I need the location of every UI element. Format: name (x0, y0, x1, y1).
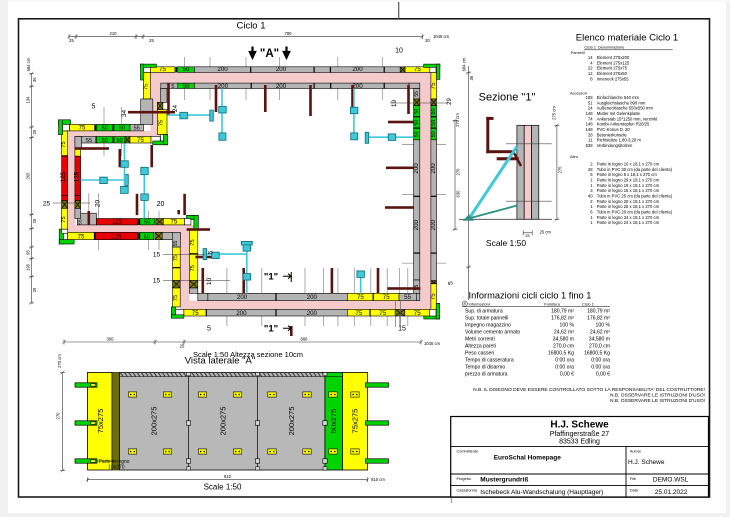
svg-text:Committente: Committente (457, 449, 479, 453)
svg-text:Informazioni: Informazioni (469, 301, 490, 306)
svg-text:Impegno magazzino: Impegno magazzino (465, 323, 511, 329)
svg-text:75: 75 (430, 82, 437, 89)
svg-text:55: 55 (173, 241, 179, 247)
svg-text:Parte in legno 19 x 18,1 x 270: Parte in legno 19 x 18,1 x 270 cm (597, 183, 660, 188)
svg-text:5: 5 (92, 104, 96, 111)
svg-text:270: 270 (456, 168, 461, 176)
svg-text:24: 24 (588, 106, 593, 111)
svg-text:Scale 1:50: Scale 1:50 (204, 483, 242, 492)
svg-text:125: 125 (61, 171, 67, 182)
svg-text:200: 200 (276, 66, 287, 73)
svg-text:50: 50 (119, 126, 125, 132)
svg-text:25: 25 (32, 218, 37, 223)
svg-text:Element 275x50: Element 275x50 (597, 71, 628, 76)
svg-text:25: 25 (32, 287, 37, 292)
svg-text:40: 40 (588, 194, 593, 199)
svg-text:275 cm: 275 cm (551, 106, 556, 120)
svg-text:Parte in legno 25 x 18,1 x 270: Parte in legno 25 x 18,1 x 270 cm (597, 204, 660, 209)
svg-text:Außenecklasche 550x550 mm: Außenecklasche 550x550 mm (597, 106, 654, 111)
svg-text:Element 275x75: Element 275x75 (597, 66, 628, 71)
svg-text:55: 55 (86, 138, 92, 144)
svg-text:10x270: 10x270 (108, 465, 125, 471)
svg-text:200: 200 (413, 219, 420, 230)
svg-text:Verbindungsbolzen: Verbindungsbolzen (597, 143, 633, 148)
svg-text:148: 148 (586, 127, 594, 132)
svg-text:Parte in legno 10 x 18,1 x 270: Parte in legno 10 x 18,1 x 270 cm (597, 162, 660, 167)
svg-text:200: 200 (413, 163, 420, 174)
svg-text:Fornitura: Fornitura (544, 301, 560, 306)
svg-text:EuroSchal Homepage: EuroSchal Homepage (494, 454, 562, 461)
svg-text:200: 200 (236, 310, 247, 317)
svg-text:Peso casseri: Peso casseri (465, 351, 494, 357)
svg-text:5: 5 (208, 250, 215, 254)
svg-text:Ciclo 1: Ciclo 1 (584, 46, 596, 50)
svg-text:15: 15 (153, 252, 161, 259)
svg-text:50: 50 (414, 131, 420, 137)
svg-text:125: 125 (111, 235, 122, 241)
svg-text:Tubo in PVC 25 cm (da parte de: Tubo in PVC 25 cm (da parte del cliente) (597, 194, 673, 199)
svg-text:200: 200 (430, 163, 437, 174)
svg-text:200: 200 (217, 66, 228, 73)
svg-text:H.J. Schewe: H.J. Schewe (550, 420, 609, 431)
svg-text:50: 50 (183, 83, 190, 90)
svg-text:50: 50 (431, 120, 437, 126)
svg-text:180,79 m²: 180,79 m² (551, 309, 574, 315)
svg-text:34: 34 (121, 110, 128, 118)
svg-text:75: 75 (61, 141, 67, 147)
svg-text:75: 75 (430, 293, 437, 300)
svg-text:75: 75 (159, 66, 166, 73)
svg-text:N.B. OSSERVARE LE ISTRUZIONI D: N.B. OSSERVARE LE ISTRUZIONI D'USO! (610, 398, 705, 404)
svg-text:16800,5 Kg: 16800,5 Kg (548, 351, 574, 357)
svg-text:Volume cemento armato: Volume cemento armato (465, 330, 520, 336)
svg-text:Cassaforma: Cassaforma (457, 488, 478, 492)
svg-text:270: 270 (56, 412, 61, 420)
svg-text:16800,5 Kg: 16800,5 Kg (584, 351, 610, 357)
svg-text:N.B. OSSERVARE LE ISTRUZIONI D: N.B. OSSERVARE LE ISTRUZIONI D'USO! (610, 393, 705, 399)
svg-text:0:00 ora: 0:00 ora (555, 365, 574, 371)
svg-text:50: 50 (102, 126, 108, 132)
svg-text:75: 75 (79, 126, 86, 132)
svg-text:Pfaffingerstraße 27: Pfaffingerstraße 27 (550, 431, 610, 438)
svg-text:83533 Edling: 83533 Edling (559, 439, 600, 446)
svg-text:10: 10 (206, 278, 213, 286)
svg-text:200: 200 (352, 66, 363, 73)
svg-text:25: 25 (149, 38, 154, 43)
svg-text:Denominazione: Denominazione (598, 46, 624, 50)
svg-text:75: 75 (190, 239, 196, 245)
svg-text:200: 200 (276, 83, 287, 90)
svg-text:50: 50 (144, 235, 150, 241)
svg-text:"1": "1" (264, 324, 278, 335)
svg-text:200: 200 (237, 294, 248, 301)
svg-text:PVC-Konus D. 20: PVC-Konus D. 20 (597, 127, 631, 132)
svg-text:N.B. IL DISEGNO DEVE ESSERE CO: N.B. IL DISEGNO DEVE ESSERE CONTROLLATO … (473, 387, 705, 393)
svg-text:275: 275 (557, 166, 562, 174)
svg-text:51: 51 (588, 100, 593, 105)
svg-text:666: 666 (301, 336, 309, 341)
svg-text:Mutter mit Gelenkplatte: Mutter mit Gelenkplatte (597, 111, 641, 116)
svg-text:Data: Data (630, 488, 639, 492)
svg-text:75: 75 (173, 295, 179, 301)
svg-text:270,0 cm: 270,0 cm (553, 344, 574, 350)
svg-text:Altezza pareti: Altezza pareti (465, 344, 496, 350)
svg-text:20: 20 (95, 200, 102, 208)
svg-text:265: 265 (26, 172, 31, 180)
svg-text:11: 11 (588, 138, 593, 143)
svg-text:50: 50 (414, 120, 420, 126)
svg-text:180,79 m²: 180,79 m² (587, 309, 610, 315)
svg-text:780: 780 (285, 31, 293, 36)
svg-text:75: 75 (137, 138, 144, 144)
svg-text:50: 50 (183, 66, 190, 73)
svg-text:50x275: 50x275 (329, 409, 338, 434)
svg-text:200: 200 (307, 294, 318, 301)
svg-text:Autore: Autore (630, 449, 641, 453)
svg-text:28: 28 (588, 167, 593, 172)
svg-text:270 cm: 270 cm (57, 354, 62, 368)
svg-text:75: 75 (414, 66, 421, 73)
svg-text:148: 148 (586, 122, 594, 127)
svg-text:75: 75 (355, 310, 362, 317)
svg-text:Accessori: Accessori (570, 91, 587, 96)
svg-text:55: 55 (134, 126, 140, 132)
svg-text:125: 125 (74, 171, 80, 182)
svg-text:24: 24 (172, 105, 179, 113)
svg-text:Tubo in PVC 20 cm (da parte de: Tubo in PVC 20 cm (da parte del cliente) (597, 210, 673, 215)
svg-text:50: 50 (116, 138, 122, 144)
svg-text:200: 200 (430, 219, 437, 230)
svg-text:15: 15 (398, 326, 406, 333)
svg-text:26: 26 (32, 129, 37, 134)
svg-text:200x275: 200x275 (219, 407, 228, 436)
svg-text:Pannelli: Pannelli (571, 50, 585, 55)
svg-text:125: 125 (112, 220, 123, 226)
svg-text:55: 55 (78, 219, 83, 225)
svg-text:50: 50 (414, 109, 420, 115)
svg-text:270 cm: 270 cm (455, 113, 460, 127)
svg-text:55: 55 (414, 91, 420, 97)
svg-text:Einfachlasche 540 mm: Einfachlasche 540 mm (597, 95, 640, 100)
svg-text:75: 75 (383, 294, 390, 301)
svg-text:75: 75 (379, 310, 386, 317)
svg-text:Ciclo 1: Ciclo 1 (236, 21, 265, 32)
svg-text:Informazioni cicli ciclo 1 fi: Informazioni cicli ciclo 1 fino 1 (469, 291, 592, 301)
svg-text:200x275: 200x275 (150, 407, 159, 436)
svg-text:810: 810 (224, 474, 232, 479)
svg-text:25: 25 (69, 38, 74, 43)
svg-text:"A": "A" (260, 48, 279, 60)
svg-text:Richtstütze 1,80-3,20 m: Richtstütze 1,80-3,20 m (597, 138, 642, 143)
svg-text:Element 275x125: Element 275x125 (597, 60, 630, 65)
svg-text:Element 275x200: Element 275x200 (597, 55, 630, 60)
svg-text:Mustergrundriß: Mustergrundriß (480, 477, 528, 484)
svg-text:Tubo in PVC 30 cm (da parte de: Tubo in PVC 30 cm (da parte del cliente) (597, 167, 673, 172)
svg-text:Parte in legno 24 x 18,1 x 270: Parte in legno 24 x 18,1 x 270 cm (597, 220, 660, 225)
svg-text:200: 200 (307, 310, 318, 317)
svg-text:100 %: 100 % (560, 323, 575, 329)
svg-text:75: 75 (414, 310, 421, 317)
svg-text:DEMO.WSL: DEMO.WSL (653, 477, 689, 484)
svg-text:75: 75 (357, 294, 364, 301)
svg-text:Sup. di armatura: Sup. di armatura (465, 309, 503, 315)
svg-text:22: 22 (588, 66, 593, 71)
svg-text:25 cm: 25 cm (540, 229, 552, 234)
svg-text:75: 75 (78, 235, 85, 241)
svg-text:684 cm: 684 cm (462, 57, 467, 71)
svg-text:176,82 m²: 176,82 m² (551, 316, 574, 322)
svg-text:1045 cm: 1045 cm (433, 34, 450, 39)
svg-text:75: 75 (61, 216, 67, 222)
svg-text:24,62 m³: 24,62 m³ (554, 330, 574, 336)
svg-text:12: 12 (588, 71, 593, 76)
svg-text:Ischebeck Alu-Wandschalung (Ha: Ischebeck Alu-Wandschalung (Hauptlager) (480, 489, 603, 496)
svg-text:Tempo di disarmo: Tempo di disarmo (465, 365, 505, 371)
svg-text:Metri correnti: Metri correnti (465, 337, 495, 343)
svg-text:Inneneck 275x55: Inneneck 275x55 (597, 76, 630, 81)
svg-text:300: 300 (107, 336, 115, 341)
svg-text:0:00 ora: 0:00 ora (591, 365, 610, 371)
svg-text:270,0 cm: 270,0 cm (589, 344, 610, 350)
svg-text:34,580 m: 34,580 m (589, 337, 610, 343)
svg-text:0,00 €: 0,00 € (596, 372, 610, 378)
svg-text:55: 55 (404, 294, 411, 301)
svg-text:H.J. Schewe: H.J. Schewe (628, 459, 665, 466)
svg-text:Vista laterale "A": Vista laterale "A" (185, 356, 255, 367)
svg-text:75: 75 (192, 310, 199, 317)
svg-text:Elenco materiale Ciclo 1: Elenco materiale Ciclo 1 (576, 33, 678, 44)
svg-text:Ausgleichslasche 890 mm: Ausgleichslasche 890 mm (597, 100, 646, 105)
svg-text:Scale 1:50: Scale 1:50 (486, 238, 526, 248)
svg-text:25: 25 (43, 201, 51, 208)
svg-text:Sezione "1": Sezione "1" (479, 92, 536, 104)
svg-text:108: 108 (586, 95, 594, 100)
svg-text:75: 75 (144, 84, 150, 90)
svg-text:29: 29 (447, 98, 453, 105)
svg-text:20: 20 (157, 201, 165, 208)
svg-text:36: 36 (32, 77, 37, 82)
svg-text:50: 50 (144, 220, 150, 226)
svg-text:134: 134 (26, 96, 31, 104)
svg-text:74: 74 (588, 116, 593, 121)
svg-text:148: 148 (586, 111, 594, 116)
svg-text:75x275: 75x275 (351, 409, 360, 434)
svg-text:75: 75 (159, 120, 165, 126)
svg-text:25: 25 (180, 344, 185, 349)
svg-text:Sup. totale pannelli: Sup. totale pannelli (465, 316, 508, 322)
svg-text:15: 15 (153, 278, 161, 285)
svg-text:25.01.2022: 25.01.2022 (655, 489, 688, 496)
svg-text:100 %: 100 % (596, 323, 611, 329)
svg-text:75: 75 (190, 265, 196, 271)
svg-text:Parte in legno 34 x 18,1 x 270: Parte in legno 34 x 18,1 x 270 cm (597, 215, 660, 220)
svg-text:95: 95 (26, 250, 31, 255)
svg-text:50: 50 (431, 131, 437, 137)
svg-text:Kombi-Ankerstopfen R20/25: Kombi-Ankerstopfen R20/25 (597, 122, 650, 127)
svg-text:prezzo di armatura: prezzo di armatura (465, 372, 508, 378)
svg-text:5: 5 (207, 326, 211, 333)
svg-text:34,580 m: 34,580 m (553, 337, 574, 343)
svg-text:0:00 ora: 0:00 ora (591, 358, 610, 364)
svg-text:50: 50 (102, 138, 108, 144)
svg-text:Ciclo 1: Ciclo 1 (582, 301, 594, 306)
svg-text:Parte in legno 5 x 18,1 x 270: Parte in legno 5 x 18,1 x 270 cm (597, 172, 658, 177)
svg-text:0,00 €: 0,00 € (560, 372, 574, 378)
svg-text:200: 200 (218, 83, 229, 90)
svg-text:200x275: 200x275 (287, 407, 296, 436)
svg-text:10: 10 (395, 48, 403, 55)
svg-text:684 cm: 684 cm (26, 57, 31, 71)
svg-text:5: 5 (171, 84, 174, 90)
svg-text:Ankerstab 15*1250 mm, verzinkt: Ankerstab 15*1250 mm, verzinkt (597, 116, 658, 121)
svg-text:176,82 m²: 176,82 m² (587, 316, 610, 322)
svg-text:"1": "1" (264, 272, 278, 283)
svg-text:Parte in legno 20 x 18,1 x 270: Parte in legno 20 x 18,1 x 270 cm (597, 199, 660, 204)
svg-text:50: 50 (431, 108, 437, 114)
svg-text:File: File (630, 477, 636, 481)
svg-text:28: 28 (588, 132, 593, 137)
svg-text:810 cm: 810 cm (371, 477, 385, 482)
svg-text:Betonierkonsole: Betonierkonsole (597, 132, 628, 137)
svg-text:Parte in legno 29 x 18,1 x 270: Parte in legno 29 x 18,1 x 270 cm (597, 178, 660, 183)
svg-text:Parte in legno 15 x 18,1 x 270: Parte in legno 15 x 18,1 x 270 cm (597, 188, 660, 193)
svg-text:19: 19 (391, 100, 398, 108)
svg-text:75: 75 (173, 255, 179, 261)
svg-text:638: 638 (586, 143, 594, 148)
svg-text:195: 195 (26, 263, 31, 271)
svg-text:36: 36 (469, 75, 474, 80)
svg-text:Tempo di casseratura: Tempo di casseratura (465, 358, 514, 364)
svg-text:75: 75 (171, 220, 178, 226)
svg-text:24,62 m³: 24,62 m³ (590, 330, 610, 336)
svg-text:630: 630 (456, 190, 461, 198)
svg-text:30: 30 (425, 38, 430, 43)
svg-text:14: 14 (588, 55, 593, 60)
svg-text:0:00 ora: 0:00 ora (555, 358, 574, 364)
svg-text:Progetto: Progetto (457, 477, 471, 481)
svg-text:5: 5 (447, 281, 454, 285)
svg-text:Altro: Altro (570, 154, 578, 159)
svg-text:210: 210 (110, 31, 118, 36)
svg-text:1045 cm: 1045 cm (424, 341, 441, 346)
